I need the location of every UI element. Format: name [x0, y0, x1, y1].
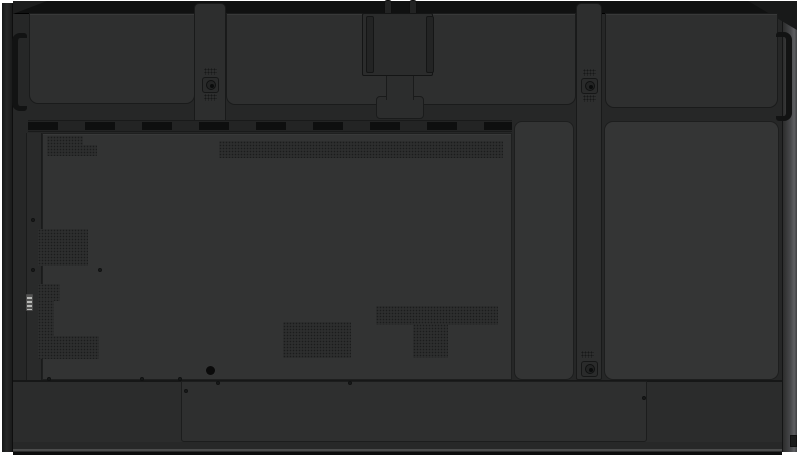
- vent-grid-center-rect: [283, 322, 351, 358]
- camera-bracket-neck: [386, 74, 414, 100]
- vent-l-shape-base: [38, 336, 99, 359]
- carry-handle-left: [12, 33, 27, 111]
- vent-grid-left-rect: [38, 229, 88, 266]
- vent-strip-top-center: [219, 141, 503, 158]
- vent-l-shape-top: [38, 284, 60, 301]
- small-screw: [216, 381, 220, 385]
- top-panel-right-segment: [605, 13, 778, 108]
- perforation-marks: [583, 95, 596, 102]
- camera-bracket-flange-right: [426, 16, 434, 73]
- top-panel-left-segment: [29, 13, 195, 104]
- vent-t-shape-stem: [413, 324, 448, 358]
- perforation-marks: [581, 351, 594, 358]
- bottom-connection-box: [181, 381, 647, 442]
- screw-head: [585, 81, 595, 91]
- small-screw: [98, 268, 102, 272]
- small-screw: [642, 396, 646, 400]
- small-screw: [348, 381, 352, 385]
- bottom-edge-face: [13, 442, 782, 455]
- screw-head: [206, 80, 216, 90]
- small-screw: [47, 377, 51, 381]
- perforation-marks: [204, 94, 217, 101]
- vent-l-shape-stem: [38, 300, 54, 337]
- small-screw: [178, 377, 182, 381]
- small-screw: [184, 389, 188, 393]
- bottom-right-notch: [790, 435, 797, 447]
- rear-view-display-photo: [0, 0, 800, 457]
- perforation-marks: [204, 68, 217, 75]
- mount-screw-bottom-right: [581, 361, 598, 377]
- side-connector-label: [26, 294, 33, 311]
- vent-slot-row: [28, 120, 512, 132]
- cable-hole-bottom-left: [206, 366, 215, 375]
- screw-center: [210, 84, 214, 88]
- mount-screw-top-right: [581, 78, 598, 94]
- small-screw: [31, 218, 35, 222]
- small-screw: [140, 377, 144, 381]
- camera-bracket-flange-left: [366, 16, 374, 73]
- screw-head: [585, 364, 595, 374]
- mount-strap-right: [576, 3, 602, 380]
- service-door-narrow: [514, 121, 574, 380]
- perforation-marks: [583, 69, 596, 76]
- screw-center: [589, 368, 593, 372]
- service-door-wide: [604, 121, 779, 380]
- vent-grid-top-left-lower: [47, 145, 97, 156]
- mount-screw-top-left: [202, 77, 219, 93]
- screw-center: [589, 85, 593, 89]
- vent-t-shape-bar: [376, 306, 498, 325]
- small-screw: [31, 268, 35, 272]
- carry-handle-right: [776, 32, 792, 121]
